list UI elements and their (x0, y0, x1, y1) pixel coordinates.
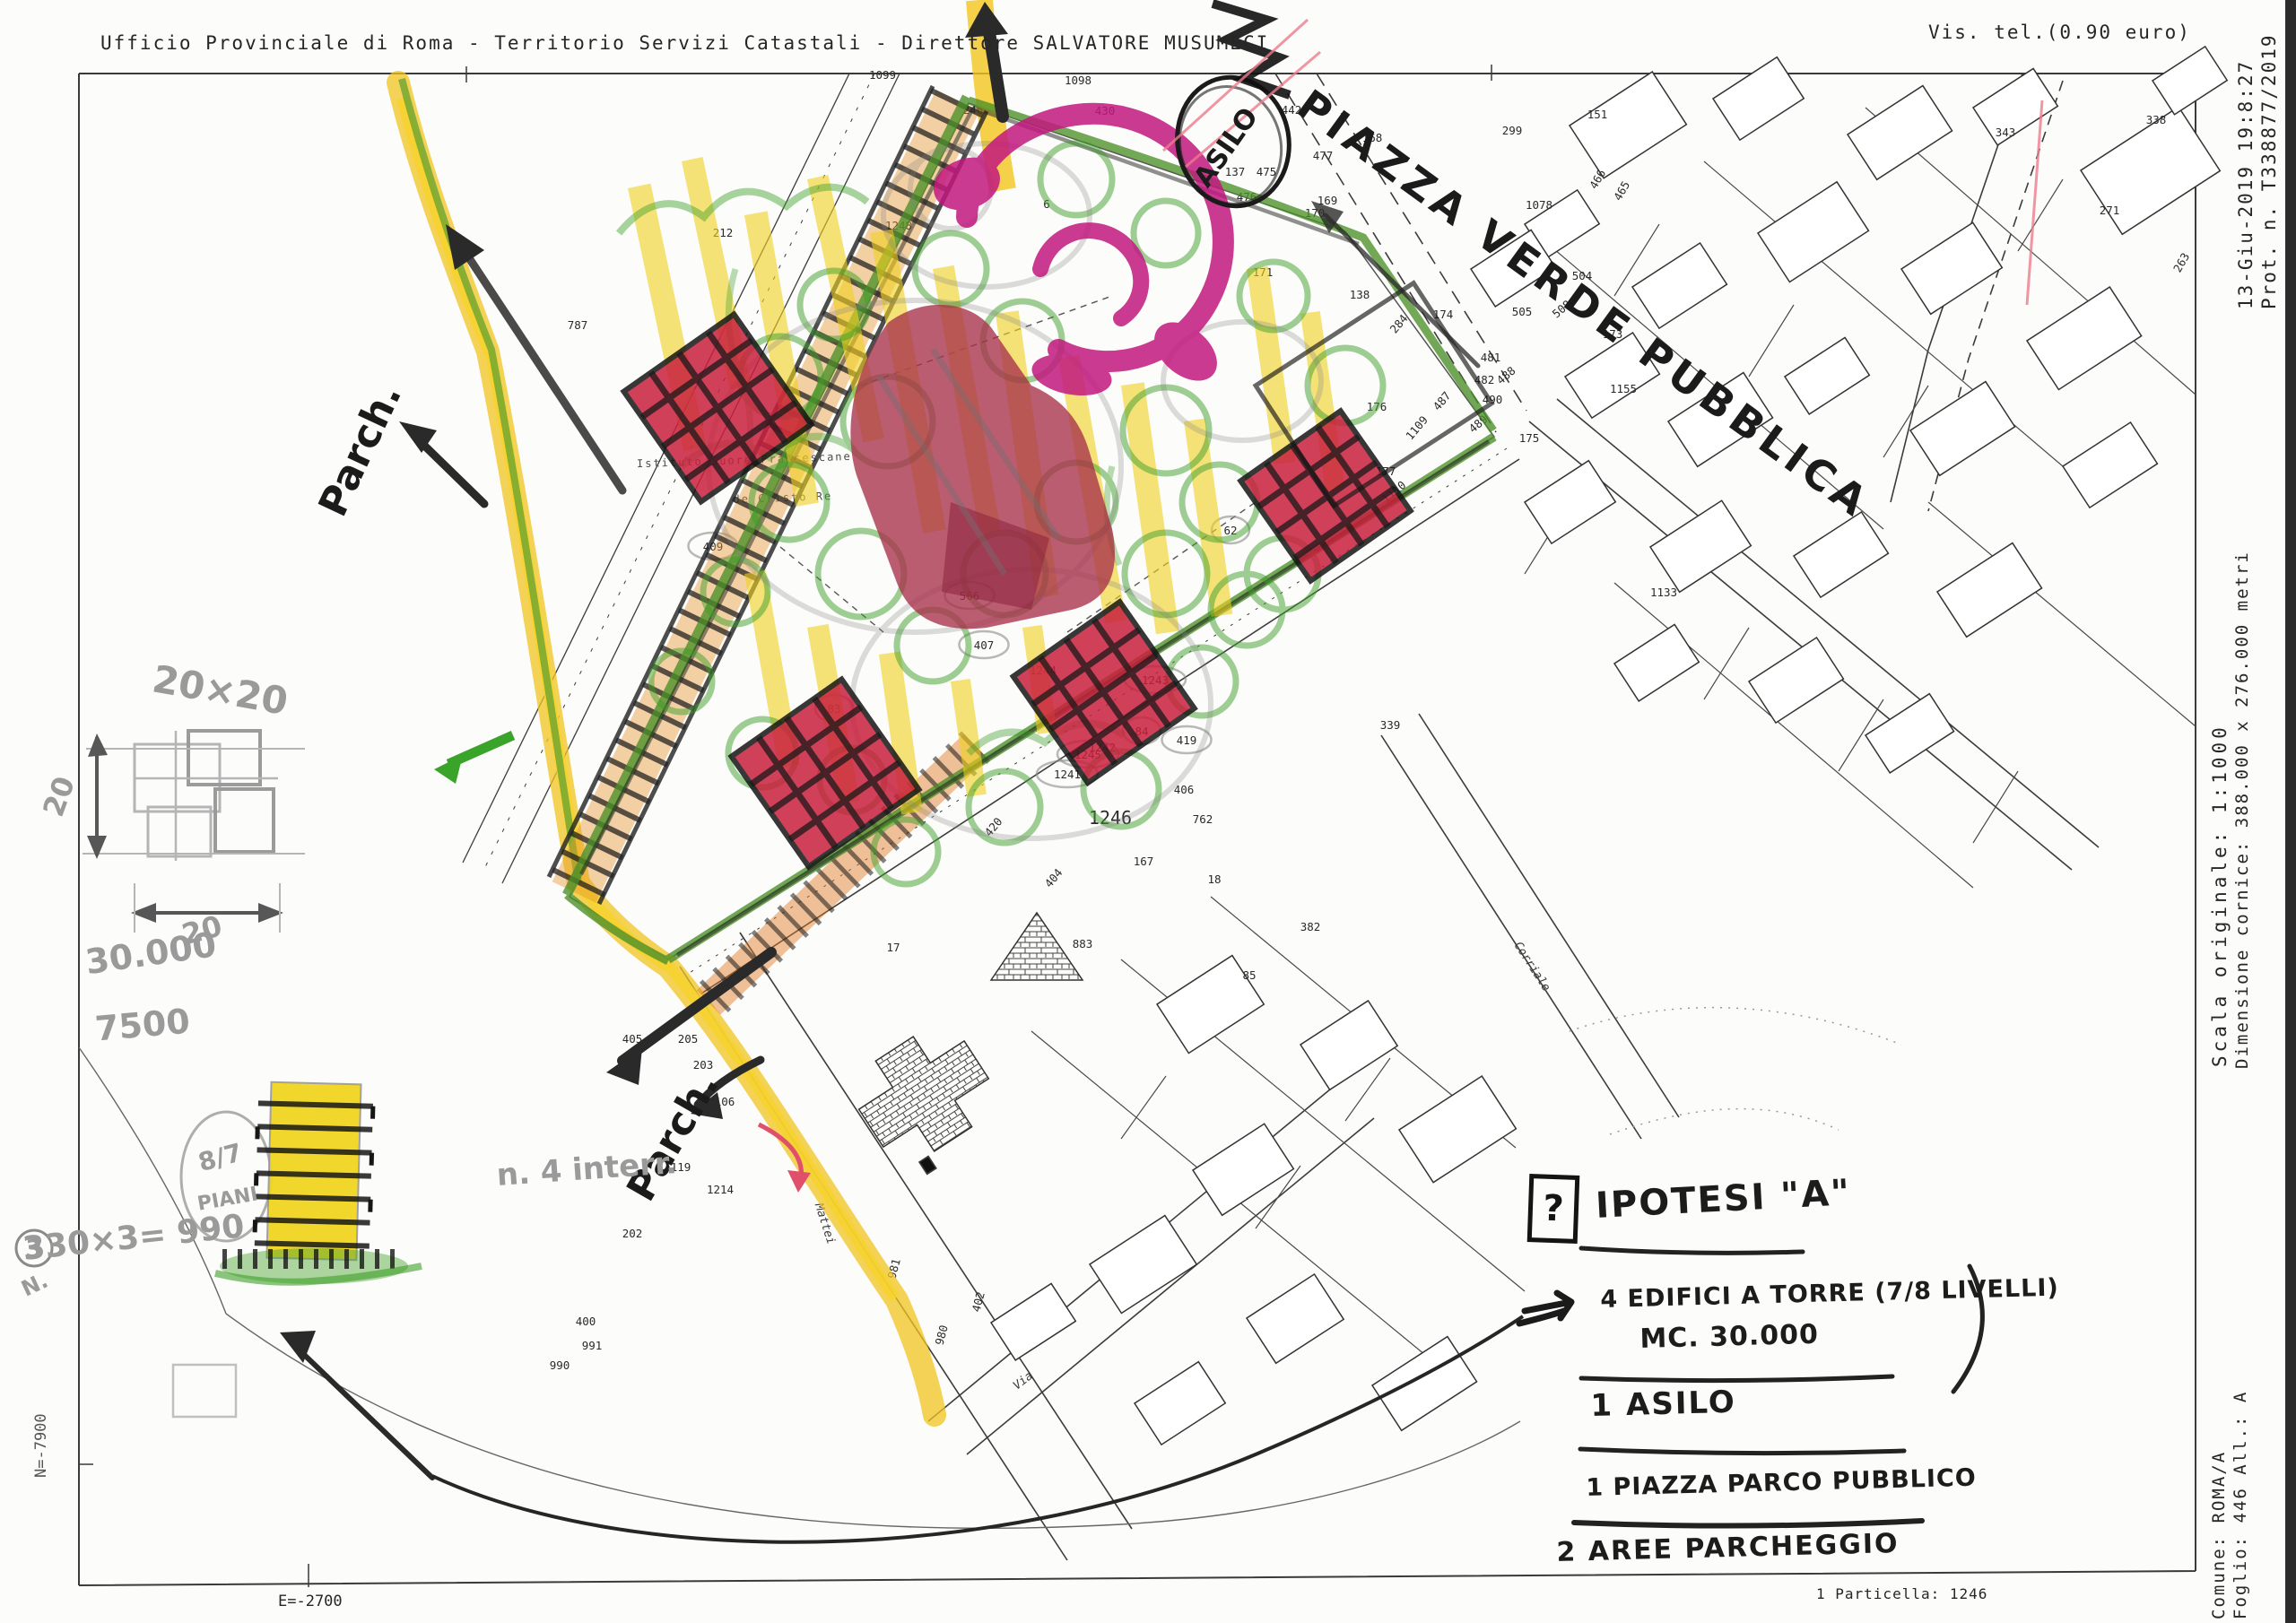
header-left: Ufficio Provinciale di Roma - Territorio… (100, 32, 1269, 54)
parcel-number: 17 (886, 941, 900, 954)
parcel-number: 419 (1177, 733, 1197, 747)
parcel-number: 271 (2100, 204, 2120, 217)
parcel-number: 787 (568, 318, 588, 332)
parcel-number: 343 (1996, 126, 2016, 139)
pencil-plan-sketch (83, 731, 305, 933)
parcel-number: 299 (1502, 124, 1523, 137)
notes-item-mc: MC. 30.000 (1639, 1319, 1819, 1355)
question-mark: ? (1543, 1188, 1565, 1230)
street-name: Via (1011, 1369, 1036, 1393)
small-symbol (919, 1156, 936, 1174)
scanned-cadastral-sheet: Istituto Suore Francescanede Cristo Re 1… (0, 0, 2296, 1623)
parcel-number: 990 (550, 1358, 570, 1372)
parcel-number: 407 (974, 638, 995, 652)
sketch-label-20: 20 (36, 772, 82, 821)
parcel-number: 1133 (1650, 586, 1677, 599)
yellow-tower-sketch (254, 1081, 373, 1260)
sketch-label-330-3-990: 330×3= 990 (21, 1208, 246, 1268)
notes-arrow (1519, 1293, 1571, 1324)
parcel-number: 263 (2170, 250, 2192, 274)
sketch-label-n-: N. (17, 1268, 51, 1302)
brick-building (991, 913, 1083, 980)
parcel-number: 402 (969, 1290, 987, 1314)
question-box: ? (1527, 1174, 1580, 1244)
foglio-note: Foglio: 446 All.: A (2231, 1391, 2250, 1619)
stamp-date: 13-Giu-2019 19:8:27 (2235, 60, 2257, 309)
parcel-number: 202 (622, 1227, 643, 1240)
sketch-label-asilo: ASILO (1187, 102, 1265, 194)
parcel-number: 487 (1431, 389, 1454, 413)
notes-item-asilo: 1 ASILO (1590, 1384, 1736, 1424)
brick-building (842, 1015, 1006, 1174)
frame-size-note: Dimensione cornice: 388.000 x 276.000 me… (2232, 551, 2252, 1069)
arrow-to-tower (296, 1347, 432, 1478)
parcel-number: 883 (1073, 937, 1093, 950)
parcel-number: 980 (932, 1324, 950, 1347)
header-right: Vis. tel.(0.90 euro) (1928, 22, 2191, 43)
parcel-number: 1099 (869, 68, 896, 82)
parcel-number: 1078 (1526, 198, 1552, 212)
sketch-label-parch-: Parch. (310, 377, 411, 523)
stamp-prot: Prot. n. T338877/2019 (2258, 33, 2280, 309)
pencil-square (173, 1365, 236, 1417)
parcel-number: 481 (1481, 351, 1501, 364)
sketch-label-8-7: 8/7 (196, 1138, 246, 1178)
map-canvas: Istituto Suore Francescanede Cristo Re 1… (0, 0, 2296, 1623)
parcel-number: 205 (678, 1032, 699, 1046)
coord-n: N=-7900 (32, 1413, 50, 1478)
parcel-number: 18 (1207, 872, 1221, 886)
particella-note: 1 Particella: 1246 (1816, 1585, 1987, 1602)
parcel-number: 85 (1242, 968, 1256, 982)
parcel-number: 475 (1257, 165, 1277, 178)
parcel-number: 138 (1350, 288, 1370, 301)
parcel-number: 477 (1313, 149, 1334, 162)
comune-note: Comune: ROMA/A (2209, 1451, 2229, 1619)
scale-note: Scala originale: 1:1000 (2209, 724, 2231, 1067)
parcel-number: 1155 (1610, 382, 1637, 395)
parcel-number: 338 (2146, 113, 2167, 126)
parcel-number: 1214 (707, 1183, 734, 1196)
parcel-number: 762 (1193, 812, 1213, 826)
parcel-number: 339 (1380, 718, 1401, 732)
street-name: Corriale (1511, 940, 1553, 994)
parcel-number: 488 (1494, 364, 1518, 387)
parcel-number: 465 (1611, 178, 1632, 203)
parcel-number: 400 (576, 1315, 596, 1328)
parcel-number: 151 (1587, 108, 1608, 121)
parcel-number: 167 (1134, 855, 1154, 868)
coord-e: E=-2700 (278, 1593, 343, 1610)
sketch-label-30-000: 30.000 (83, 924, 219, 982)
parcel-number: 404 (1042, 866, 1065, 890)
parcel-number: 175 (1519, 431, 1540, 445)
sketch-label-20-20: 20×20 (149, 656, 291, 724)
sketch-label-3: 3 (25, 1234, 42, 1263)
parcel-number: 505 (1512, 305, 1533, 318)
parcel-number: 382 (1300, 920, 1321, 933)
parcel-number: 1109 (1403, 413, 1431, 443)
parcel-number: 1098 (1065, 74, 1091, 87)
parcel-number: 991 (582, 1339, 603, 1352)
sketch-label-7500: 7500 (93, 1002, 191, 1049)
